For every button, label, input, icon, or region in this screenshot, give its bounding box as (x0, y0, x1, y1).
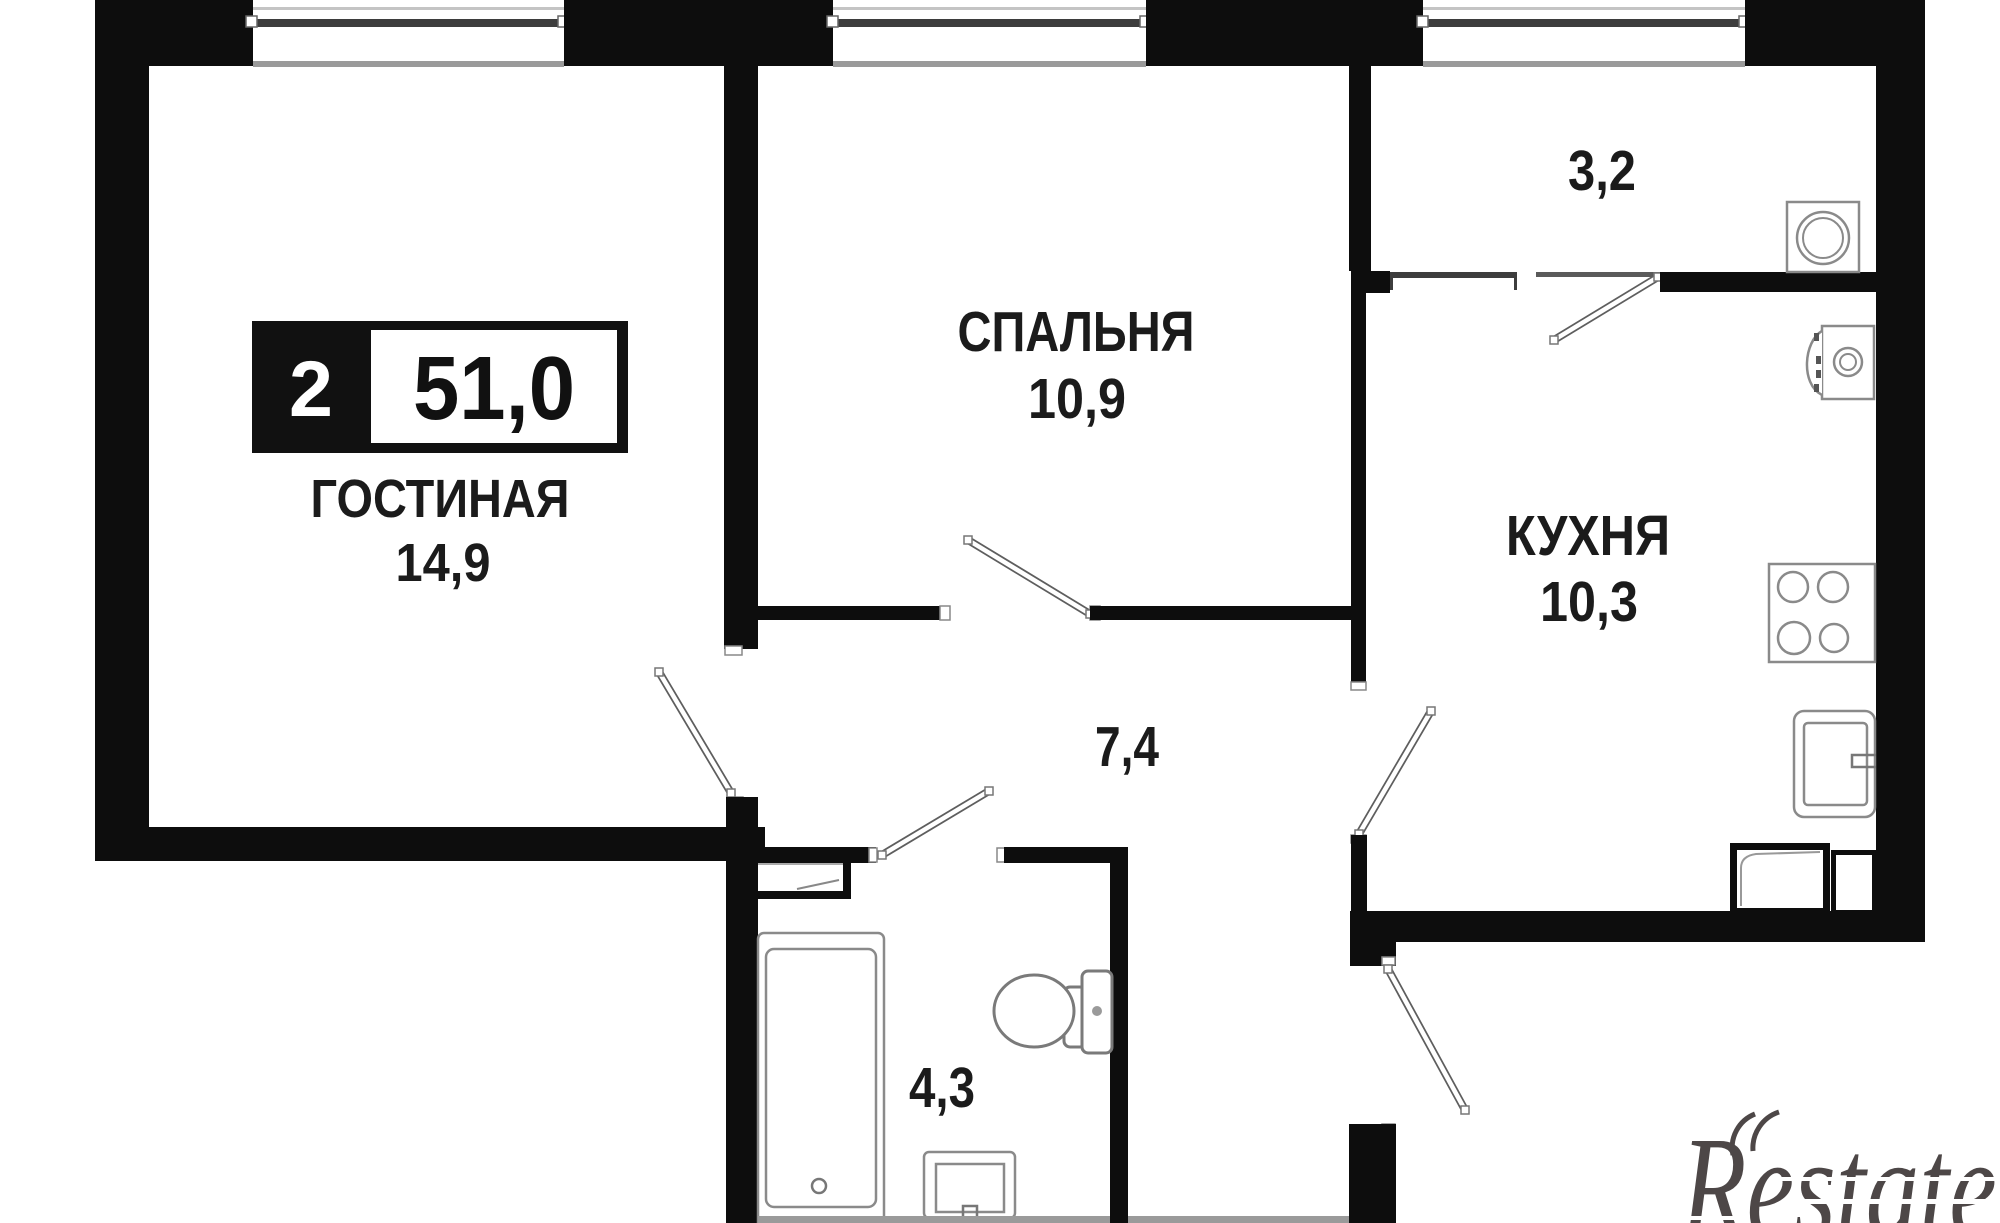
svg-text:СПАЛЬНЯ: СПАЛЬНЯ (958, 300, 1195, 364)
svg-text:4,3: 4,3 (909, 1056, 975, 1120)
svg-text:7,4: 7,4 (1095, 715, 1159, 779)
svg-text:10,9: 10,9 (1028, 367, 1126, 431)
svg-text:ГОСТИНАЯ: ГОСТИНАЯ (311, 469, 570, 529)
svg-text:Restate: Restate (1680, 1106, 1997, 1223)
svg-text:КУХНЯ: КУХНЯ (1506, 504, 1670, 568)
svg-text:10,3: 10,3 (1540, 570, 1638, 634)
svg-text:51,0: 51,0 (413, 339, 575, 439)
svg-text:2: 2 (289, 344, 333, 433)
svg-text:14,9: 14,9 (396, 533, 491, 593)
svg-text:3,2: 3,2 (1568, 139, 1636, 203)
